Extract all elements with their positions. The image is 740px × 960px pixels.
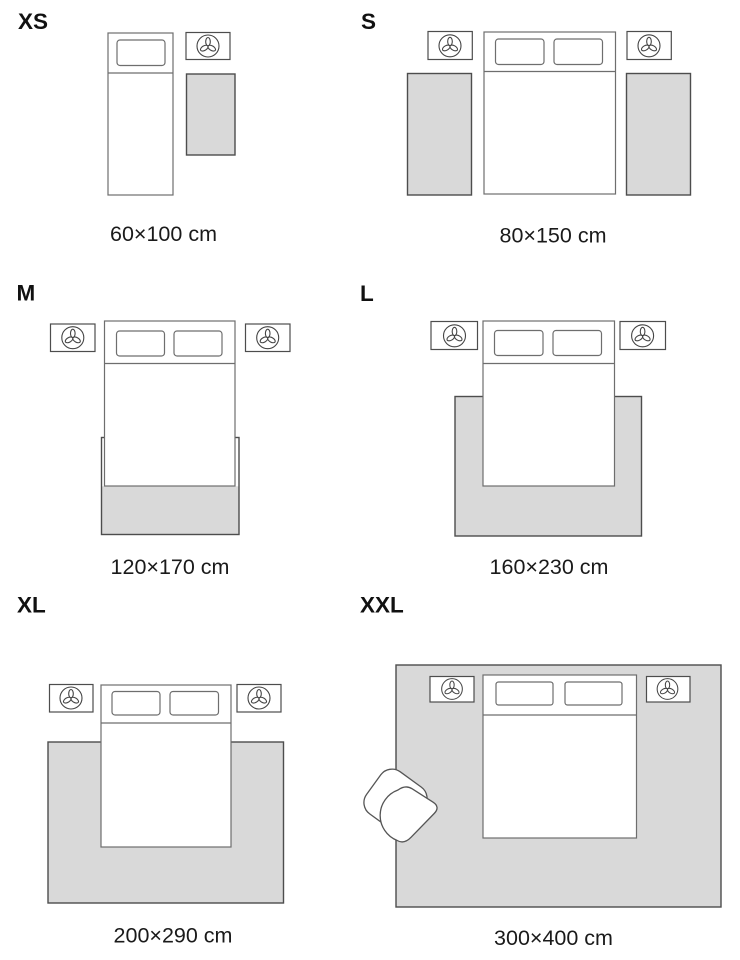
svg-text:XXL: XXL bbox=[360, 593, 404, 618]
svg-text:S: S bbox=[361, 9, 376, 34]
svg-text:80×150 cm: 80×150 cm bbox=[500, 224, 607, 248]
svg-text:120×170 cm: 120×170 cm bbox=[111, 555, 230, 579]
svg-text:60×100 cm: 60×100 cm bbox=[110, 222, 217, 246]
svg-text:300×400 cm: 300×400 cm bbox=[494, 926, 613, 950]
svg-text:M: M bbox=[17, 281, 36, 306]
svg-text:160×230 cm: 160×230 cm bbox=[490, 555, 609, 579]
svg-text:XS: XS bbox=[18, 9, 48, 34]
svg-text:200×290 cm: 200×290 cm bbox=[114, 924, 233, 948]
svg-text:XL: XL bbox=[17, 593, 46, 618]
svg-text:L: L bbox=[360, 281, 374, 306]
